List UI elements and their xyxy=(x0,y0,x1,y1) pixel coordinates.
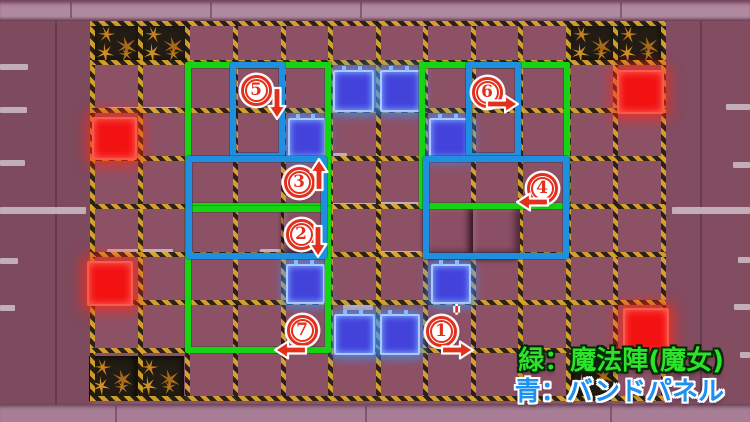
arrow-left-icon xyxy=(274,340,308,360)
hazard-grid-line-horizontal xyxy=(90,300,666,305)
game-board-screenshot: 1'234567 緑：魔法陣(魔女) 青：バンドパネル xyxy=(0,0,750,422)
step-number: 1 xyxy=(435,323,447,340)
scorch-star-icon xyxy=(571,24,593,46)
damaged-tile xyxy=(89,356,136,401)
band-panel-tile[interactable] xyxy=(333,70,374,112)
arrow-left-icon xyxy=(516,192,550,212)
hazard-grid-line-horizontal xyxy=(90,21,666,26)
band-panel-tile[interactable] xyxy=(431,264,471,304)
hazard-grid-line-horizontal xyxy=(90,204,666,209)
floor-highlight-dash xyxy=(734,304,750,310)
floor-highlight-dash xyxy=(0,160,25,166)
floor-highlight-dash xyxy=(726,104,750,110)
red-panel-tile[interactable] xyxy=(87,261,133,306)
hazard-grid-line-horizontal xyxy=(90,60,666,65)
arrow-down-icon xyxy=(308,224,328,258)
arrow-up-icon xyxy=(309,158,329,192)
red-panel-tile[interactable] xyxy=(92,117,137,160)
red-panel-tile[interactable] xyxy=(617,70,664,114)
floor-highlight-dash xyxy=(0,207,86,214)
damaged-tile xyxy=(615,23,663,62)
step-number: 5 xyxy=(250,82,262,99)
hazard-grid-line-horizontal xyxy=(90,156,666,161)
step-number: 3 xyxy=(293,174,305,191)
floor-highlight-dash xyxy=(738,257,750,263)
damaged-tile xyxy=(140,23,188,62)
hazard-grid-line-vertical xyxy=(90,21,95,401)
band-panel-tile[interactable] xyxy=(334,314,375,355)
scorch-star-icon xyxy=(618,24,640,46)
band-panel-tile[interactable] xyxy=(380,70,421,112)
hazard-grid-line-horizontal xyxy=(90,108,666,113)
hazard-grid-line-vertical xyxy=(138,21,143,401)
floor-highlight-dash xyxy=(733,162,750,168)
damaged-tile xyxy=(568,23,615,62)
scorch-star-icon xyxy=(92,357,114,379)
hazard-grid-line-horizontal xyxy=(90,252,666,257)
floor-highlight-dash xyxy=(0,107,27,113)
step-marker-prime: ' xyxy=(453,304,460,328)
floor-highlight-dash xyxy=(0,64,28,70)
floor-highlight-dash xyxy=(740,352,750,358)
arrow-right-icon xyxy=(485,94,519,114)
legend-band-panel: 青：バンドパネル xyxy=(515,378,724,406)
step-number: 2 xyxy=(295,226,307,243)
damaged-tile xyxy=(93,23,140,62)
scorch-star-icon xyxy=(143,24,165,46)
floor-highlight-dash xyxy=(672,207,750,214)
top-wall-ledge xyxy=(0,0,750,21)
arrow-right-icon xyxy=(440,340,474,360)
floor-highlight-dash xyxy=(0,305,15,311)
floor-highlight-dash xyxy=(0,258,18,264)
arrow-down-icon xyxy=(267,86,287,120)
band-panel-tile[interactable] xyxy=(380,314,420,355)
step-number: 7 xyxy=(296,322,308,339)
legend-magic-circle: 緑：魔法陣(魔女) xyxy=(518,347,724,375)
damaged-tile xyxy=(136,356,184,401)
scorch-star-icon xyxy=(96,24,118,46)
